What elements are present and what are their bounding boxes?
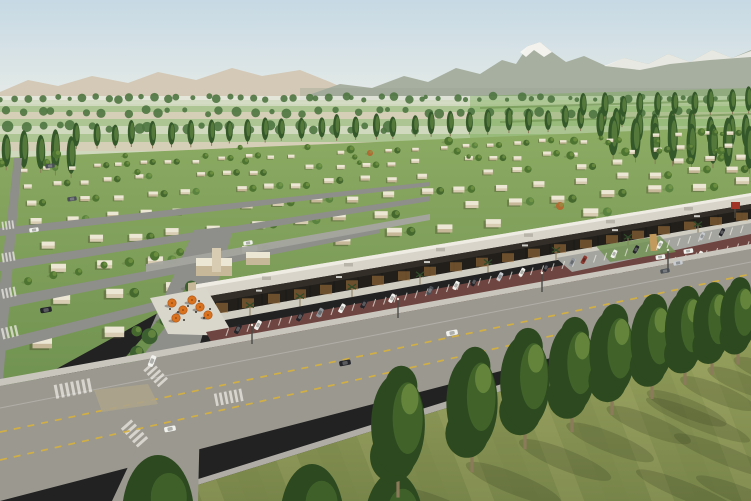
distant-tree [232,107,242,117]
tree-highlight [359,161,361,163]
tree-highlight [176,159,179,162]
house-roof [551,196,564,200]
distant-tree [46,107,54,115]
patio-table [209,308,211,310]
tree-highlight [130,123,134,139]
house-roof [514,141,521,143]
tree-highlight [5,138,10,160]
distant-tree [332,107,338,113]
tree-highlight [75,125,79,141]
tree-highlight [336,117,340,133]
distant-tree [20,109,28,117]
tree-highlight [152,160,155,163]
storefront-glow [268,294,280,304]
tree-highlight [354,119,358,133]
tree-highlight [690,144,693,147]
house-roof [246,154,253,156]
tree-highlight [547,112,551,125]
storefront-glow [710,217,722,225]
house-roof [727,167,738,170]
distant-tree [83,109,90,116]
distant-tree [355,109,362,116]
tree-highlight [456,148,460,152]
distant-tree [11,96,18,103]
house-roof [705,156,714,159]
tree-highlight [706,166,710,170]
distant-tree [125,110,133,118]
tree-highlight [668,185,672,189]
house-roof [306,165,314,167]
rooftop-unit [524,233,533,237]
tree-highlight [471,186,475,190]
storefront-glow [450,262,462,271]
house-roof [267,156,274,158]
distant-tree [142,105,151,114]
car-cabin [48,164,53,167]
house-roof [115,162,122,164]
tree-highlight [22,134,27,159]
tree-highlight [527,111,531,126]
distant-tree [713,96,718,101]
tree-highlight [163,191,167,195]
tree-highlight [618,138,621,141]
rooftop-unit [262,276,271,280]
distant-tree [534,107,544,117]
tree-highlight [307,145,310,148]
patio-table [183,319,185,321]
house-roof [441,146,448,148]
house-roof [81,180,89,182]
tree-highlight [572,195,576,199]
distant-tree [150,93,159,102]
umbrella-top [191,299,193,301]
house-roof [324,178,333,181]
tree-highlight [279,183,283,187]
tree-highlight [439,188,443,192]
tree-highlight [170,125,174,140]
house-roof [736,155,745,158]
house-roof [90,235,103,239]
distant-tree [198,122,204,128]
tree-highlight [397,148,400,151]
storefront-sign [694,215,700,217]
distant-tree [68,97,72,101]
storefront-sign [256,290,262,292]
patio-table [169,308,171,310]
tree-highlight [395,211,399,215]
house-roof [51,264,66,269]
house-roof [509,198,522,202]
tree-highlight [117,176,120,179]
distant-tree [434,109,444,119]
tree-highlight [236,170,239,173]
distant-tree [361,97,366,102]
tree-highlight [149,234,153,238]
tree-highlight [474,143,477,146]
rooftop-unit [606,220,615,224]
house-roof [725,144,733,146]
house-roof [514,156,522,158]
house-roof [197,172,205,174]
house-roof [412,148,419,150]
tree-highlight [722,132,724,134]
umbrella-top [171,302,173,304]
tree-highlight [228,123,232,137]
distant-tree [262,96,268,102]
distant-tree [269,109,274,114]
tree-highlight [136,327,141,332]
storefront-glow [476,258,488,267]
street-light-head [397,298,399,300]
tree-highlight [713,184,717,188]
tree-highlight [106,163,109,166]
distant-tree [529,96,534,101]
tree-highlight [55,165,58,168]
car-cabin [32,228,37,231]
car-cabin [70,197,75,200]
distant-tree [436,96,441,101]
distant-tree [96,109,105,118]
house-roof [181,189,190,192]
house-roof [104,177,112,179]
tree-highlight [449,113,453,128]
distant-tree [314,107,322,115]
tree-highlight [612,120,618,146]
tree-highlight [95,195,99,199]
storefront-glow [736,213,748,221]
tree-highlight [744,166,748,170]
distant-tree [24,95,32,103]
house-roof [166,228,179,232]
tree-highlight [689,158,693,162]
tree-highlight [27,278,31,282]
distant-tree [164,95,172,103]
distant-tree [325,94,333,102]
tree-highlight [354,155,357,158]
tree-highlight [487,112,491,127]
tree-highlight [604,95,608,111]
distant-tree [250,95,257,102]
tree-highlight [205,154,208,157]
distant-tree [463,97,468,102]
tree-highlight [608,140,611,143]
distant-tree [376,106,383,113]
tree-highlight [114,127,118,141]
tree-highlight [195,189,199,193]
tree-highlight [659,149,662,152]
distant-tree [39,107,48,116]
distant-tree [2,121,13,132]
house-roof [106,289,123,294]
house-roof [149,192,158,195]
storefront-sign [612,229,618,231]
house-roof [31,218,42,221]
storefront-glow [502,253,514,262]
tree-highlight [720,155,724,159]
distant-tree [589,110,598,119]
tree-highlight [53,272,57,276]
house-roof [617,173,628,176]
distant-tree [164,107,169,112]
tree-highlight [709,91,713,107]
distant-tree [212,94,221,103]
distant-tree [106,95,113,102]
tree-highlight [738,130,741,133]
street-light-head [541,272,543,274]
tree-highlight [136,347,143,354]
distant-tree [57,122,64,129]
tree-highlight [570,152,574,156]
tree-highlight [318,164,321,167]
distant-tree [138,94,143,99]
distant-tree [379,93,385,99]
distant-tree [298,110,306,118]
tree-highlight [46,160,50,164]
tree-highlight [657,139,660,142]
distant-tree [454,94,461,101]
tree-highlight [125,154,128,157]
patio-table [195,311,197,313]
house-roof [543,151,551,153]
house-roof [583,208,598,213]
distant-tree [114,95,123,104]
rooftop-unit [684,207,693,211]
distant-tree [238,94,244,100]
storefront-sign [424,261,430,263]
tree-highlight [478,155,481,158]
tree-highlight [154,252,159,257]
house-roof [387,228,402,233]
distant-tree [55,94,61,100]
distant-tree [281,109,291,119]
tree-highlight [103,262,107,266]
house-roof [361,176,370,179]
house-roof [418,174,427,177]
tower-element [212,248,221,272]
umbrella-top [207,314,209,316]
house-roof [68,216,79,219]
distant-tree [190,95,195,100]
house-roof [539,139,546,141]
tree-highlight [606,208,611,213]
street-light-head [667,249,669,251]
distant-tree [518,92,527,101]
tree-highlight [528,344,544,372]
house-roof [437,224,452,229]
tree-highlight [240,145,243,148]
house-roof [675,133,682,135]
umbrella-top [175,317,177,319]
tree-highlight [410,228,415,233]
house-roof [487,144,494,146]
distant-tree [40,122,48,130]
house-roof [453,186,464,189]
house-roof [21,169,28,171]
house-roof [193,160,200,162]
house-roof [141,161,148,163]
house-roof [577,164,586,167]
tree-highlight [148,330,156,338]
tree-highlight [625,148,629,152]
house-roof [105,327,125,333]
house-roof [218,157,225,159]
tree-highlight [674,94,678,108]
tree-highlight [245,158,248,161]
tree-highlight [133,289,138,294]
house-roof [388,162,396,164]
tree-highlight [210,171,213,174]
house-roof [650,173,661,176]
house-roof [237,186,246,189]
tree-highlight [575,333,590,360]
tree-highlight [622,98,626,112]
house-roof [489,156,497,158]
distant-tree [385,107,390,112]
tree-highlight [56,151,60,155]
tree-highlight [350,146,354,150]
house-roof [689,167,700,170]
distant-tree [172,94,179,101]
house-roof [484,169,493,172]
storefront-glow [580,240,592,249]
tree-highlight [720,148,724,152]
tree-highlight [529,198,533,202]
storefront-glow [606,235,618,244]
storefront-glow [320,285,332,295]
distant-tree [313,95,319,101]
umbrella-top [182,309,184,311]
tree-highlight [401,384,418,415]
tree-highlight [137,170,140,173]
house-roof [576,178,587,181]
aerial-rendering [0,0,751,501]
distant-tree [390,92,399,101]
distant-tree [289,94,296,101]
house-roof [465,201,478,205]
distant-tree [457,109,465,117]
tree-highlight [96,126,100,141]
tree-highlight [601,136,603,138]
red-monument-sign [731,202,740,209]
tree-highlight [246,122,250,137]
house-roof [581,140,588,142]
tree-highlight [526,140,529,143]
patio-table [203,317,205,319]
tree-highlight [375,116,379,132]
tree-highlight [0,160,4,164]
house-roof [693,184,706,188]
tree-highlight [726,123,732,156]
storefront-glow [528,249,540,258]
storefront-glow [398,271,410,280]
distant-tree [402,107,408,113]
distant-tree [206,93,212,99]
house-roof [94,164,101,166]
distant-tree [405,95,413,103]
distant-tree [280,95,287,102]
tree-highlight [148,173,151,176]
tree-highlight [70,140,75,165]
distant-tree [309,126,318,135]
house-roof [107,212,118,215]
house-roof [463,144,470,146]
tree-highlight [300,120,304,134]
distant-tree [66,110,72,116]
house-roof [291,183,300,186]
tree-highlight [78,269,82,273]
distant-tree [361,123,368,130]
tree-highlight [369,151,372,154]
storefront-glow [632,231,644,239]
tree-highlight [128,258,133,263]
storefront-glow [424,267,436,276]
scene-canvas [0,0,751,501]
tree-highlight [564,108,568,123]
distant-tree [423,95,427,99]
tree-highlight [448,138,452,142]
house-roof [250,171,258,173]
tree-highlight [252,185,256,189]
tree-highlight [592,164,596,168]
tree-highlight [475,364,491,393]
storefront-sign [522,244,528,246]
tree-highlight [392,119,396,133]
house-roof [613,160,622,163]
tree-highlight [615,319,630,345]
distant-tree [593,97,597,101]
tree-highlight [179,249,183,253]
patio-table [187,305,189,307]
tree-highlight [556,151,559,154]
house-roof [54,181,62,183]
tree-highlight [375,162,378,165]
house-roof [387,177,396,180]
patio-table [198,300,200,302]
tree-highlight [508,110,512,125]
house-roof [385,149,392,151]
pad-building-roof [246,252,270,258]
tree-highlight [667,172,671,176]
tree-highlight [263,170,266,173]
house-roof [422,188,433,191]
house-roof [80,196,89,199]
tree-highlight [694,94,698,109]
tree-highlight [151,124,155,141]
tree-highlight [559,203,563,207]
tree-highlight [527,166,531,170]
storefront-glow [658,226,670,234]
distant-tree [681,95,686,100]
tree-highlight [573,137,577,141]
umbrella-top [199,306,201,308]
tree-highlight [210,122,214,138]
distant-tree [227,94,233,100]
distant-tree [78,94,87,103]
tree-highlight [414,117,418,130]
house-roof [264,184,273,187]
tree-highlight [126,161,129,164]
house-roof [129,234,142,238]
house-roof [27,201,36,204]
distant-tree [182,107,187,112]
house-roof [486,219,501,224]
house-roof [677,145,685,147]
house-roof [411,159,419,161]
house-roof [338,151,345,153]
tree-highlight [582,96,586,111]
house-roof [674,158,683,161]
house-roof [337,165,345,167]
